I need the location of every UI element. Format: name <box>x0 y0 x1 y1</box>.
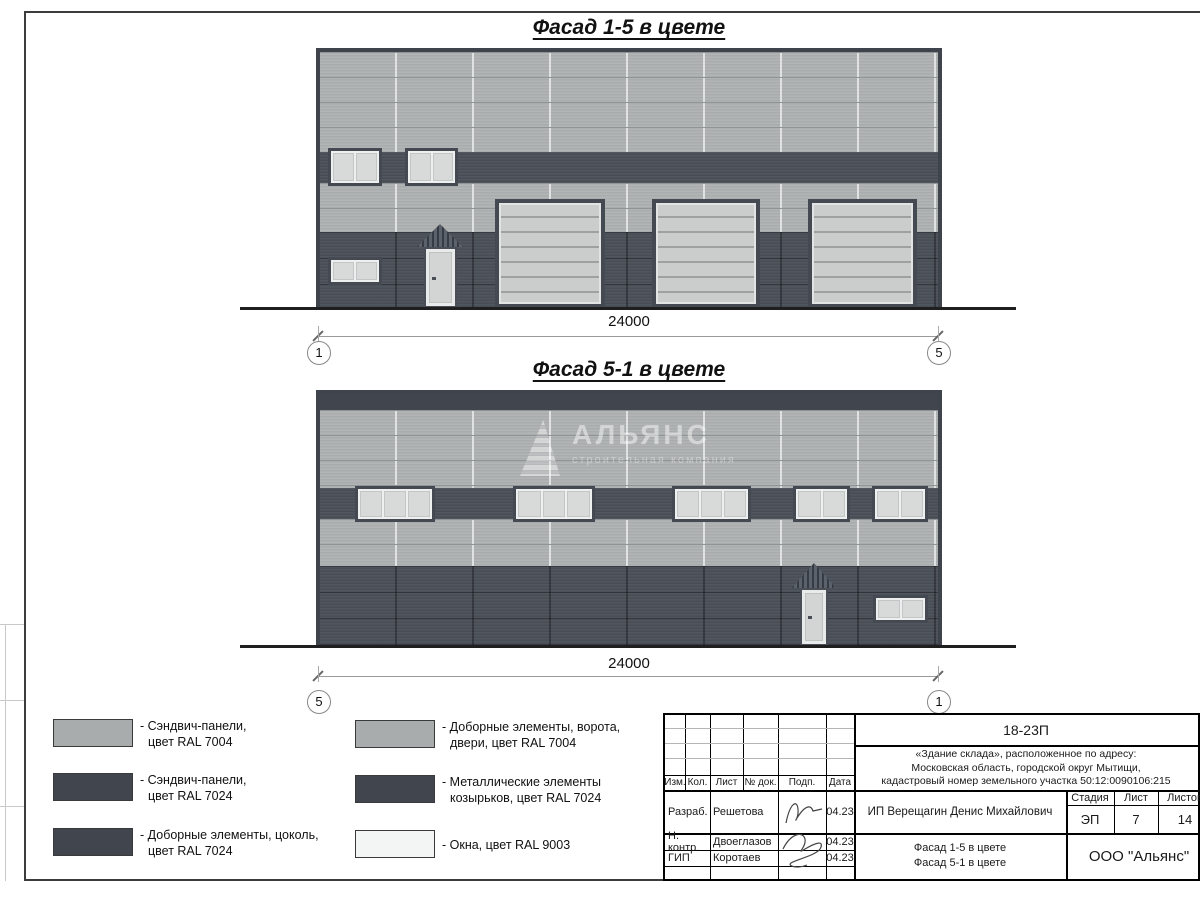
facade-2-title: Фасад 5-1 в цвете <box>316 358 942 382</box>
watermark-sail-logo-icon <box>520 420 560 476</box>
tb-name: Двоеглазов <box>710 833 778 850</box>
signature <box>777 829 829 873</box>
legend-label: - Сэндвич-панели,цвет RAL 7004 <box>140 718 246 750</box>
dimension-line <box>318 676 938 677</box>
tb-project-code: 18-23П <box>854 715 1198 745</box>
tb-sheets-value: 14 <box>1158 805 1200 833</box>
sectional-gate <box>652 199 760 308</box>
watermark-title: АЛЬЯНС <box>572 420 736 450</box>
legend-label: - Доборные элементы, цоколь,цвет RAL 702… <box>140 827 319 859</box>
legend-label: - Сэндвич-панели,цвет RAL 7024 <box>140 772 246 804</box>
sectional-gate <box>495 199 605 308</box>
axis-extension-line <box>938 666 939 682</box>
tb-sheet-value: 7 <box>1114 805 1158 833</box>
tb-header-kol: Кол. <box>685 775 710 790</box>
tb-sheet-label: Лист <box>1114 790 1158 805</box>
ground-line <box>240 307 1016 310</box>
facade-2-drawing: АЛЬЯНС строительная компания <box>316 390 942 648</box>
window <box>793 486 850 522</box>
tb-date: 04.23 <box>826 833 854 850</box>
frame-left <box>24 11 26 881</box>
watermark-subtitle: строительная компания <box>572 454 736 466</box>
drawing-sheet: Фасад 1-5 в цвете 24000 1 5 Фасад 5-1 в … <box>0 0 1200 900</box>
margin-line <box>0 700 24 701</box>
tb-name: Решетова <box>710 790 778 833</box>
parapet-band <box>320 394 938 410</box>
signature <box>780 795 826 831</box>
axis-marker-1: 1 <box>927 690 951 714</box>
legend-label: - Металлические элементыкозырьков, цвет … <box>442 774 601 806</box>
window <box>672 486 751 522</box>
panel-zone-light <box>320 52 938 152</box>
tb-header-data: Дата <box>826 775 854 790</box>
tb-header-izm: Изм. <box>665 775 685 790</box>
panel-zone-light <box>320 519 938 566</box>
legend-swatch <box>355 720 435 748</box>
door-handle <box>808 616 812 619</box>
tb-role: Разраб. <box>665 790 710 833</box>
dimension-label: 24000 <box>316 313 942 330</box>
axis-marker-5: 5 <box>307 690 331 714</box>
sectional-gate <box>808 199 917 308</box>
margin-line <box>0 806 24 807</box>
window <box>405 148 458 186</box>
tb-header-list: Лист <box>710 775 743 790</box>
door-handle <box>432 277 436 280</box>
entrance-door <box>424 247 457 308</box>
window <box>872 486 928 522</box>
tb-date: 04.23 <box>826 850 854 866</box>
tb-name: Коротаев <box>710 850 778 866</box>
window <box>513 486 595 522</box>
tb-header-ndok: № док. <box>743 775 778 790</box>
window <box>328 257 382 285</box>
legend-swatch <box>53 719 133 747</box>
window <box>355 486 435 522</box>
legend-swatch <box>53 773 133 801</box>
entrance-door <box>800 588 828 646</box>
tb-role: Н. контр. <box>665 833 710 850</box>
tb-client: ИП Верещагин Денис Михайлович <box>854 790 1066 833</box>
legend-swatch <box>355 775 435 803</box>
tb-header-podp: Подп. <box>778 775 826 790</box>
legend-swatch <box>355 830 435 858</box>
tb-object-description: «Здание склада», расположенное по адресу… <box>857 746 1195 790</box>
dimension-line <box>318 336 938 337</box>
tb-stage-label: Стадия <box>1066 790 1114 805</box>
tb-company: ООО "Альянс" <box>1066 833 1200 879</box>
axis-extension-line <box>318 326 319 342</box>
facade-1-drawing <box>316 48 942 308</box>
frame-top <box>24 11 1200 13</box>
margin-line <box>5 624 6 881</box>
window <box>328 148 382 186</box>
legend-label: - Окна, цвет RAL 9003 <box>442 837 570 853</box>
tb-role: ГИП <box>665 850 710 866</box>
tb-date: 04.23 <box>826 790 854 833</box>
tb-sheets-label: Листов <box>1158 790 1200 805</box>
facade-1-title: Фасад 1-5 в цвете <box>316 16 942 40</box>
tb-stage-value: ЭП <box>1066 805 1114 833</box>
legend-label: - Доборные элементы, ворота,двери, цвет … <box>442 719 620 751</box>
margin-line <box>0 624 24 625</box>
ground-line <box>240 645 1016 648</box>
dimension-label: 24000 <box>316 655 942 672</box>
company-watermark: АЛЬЯНС строительная компания <box>520 420 736 476</box>
axis-extension-line <box>938 326 939 342</box>
title-block: Изм. Кол. Лист № док. Подп. Дата Разраб.… <box>663 713 1200 881</box>
panel-zone-plinth <box>320 566 938 648</box>
window <box>873 595 928 623</box>
tb-doc-title: Фасад 1-5 в цвете Фасад 5-1 в цвете <box>854 833 1066 879</box>
legend-swatch <box>53 828 133 856</box>
axis-extension-line <box>318 666 319 682</box>
